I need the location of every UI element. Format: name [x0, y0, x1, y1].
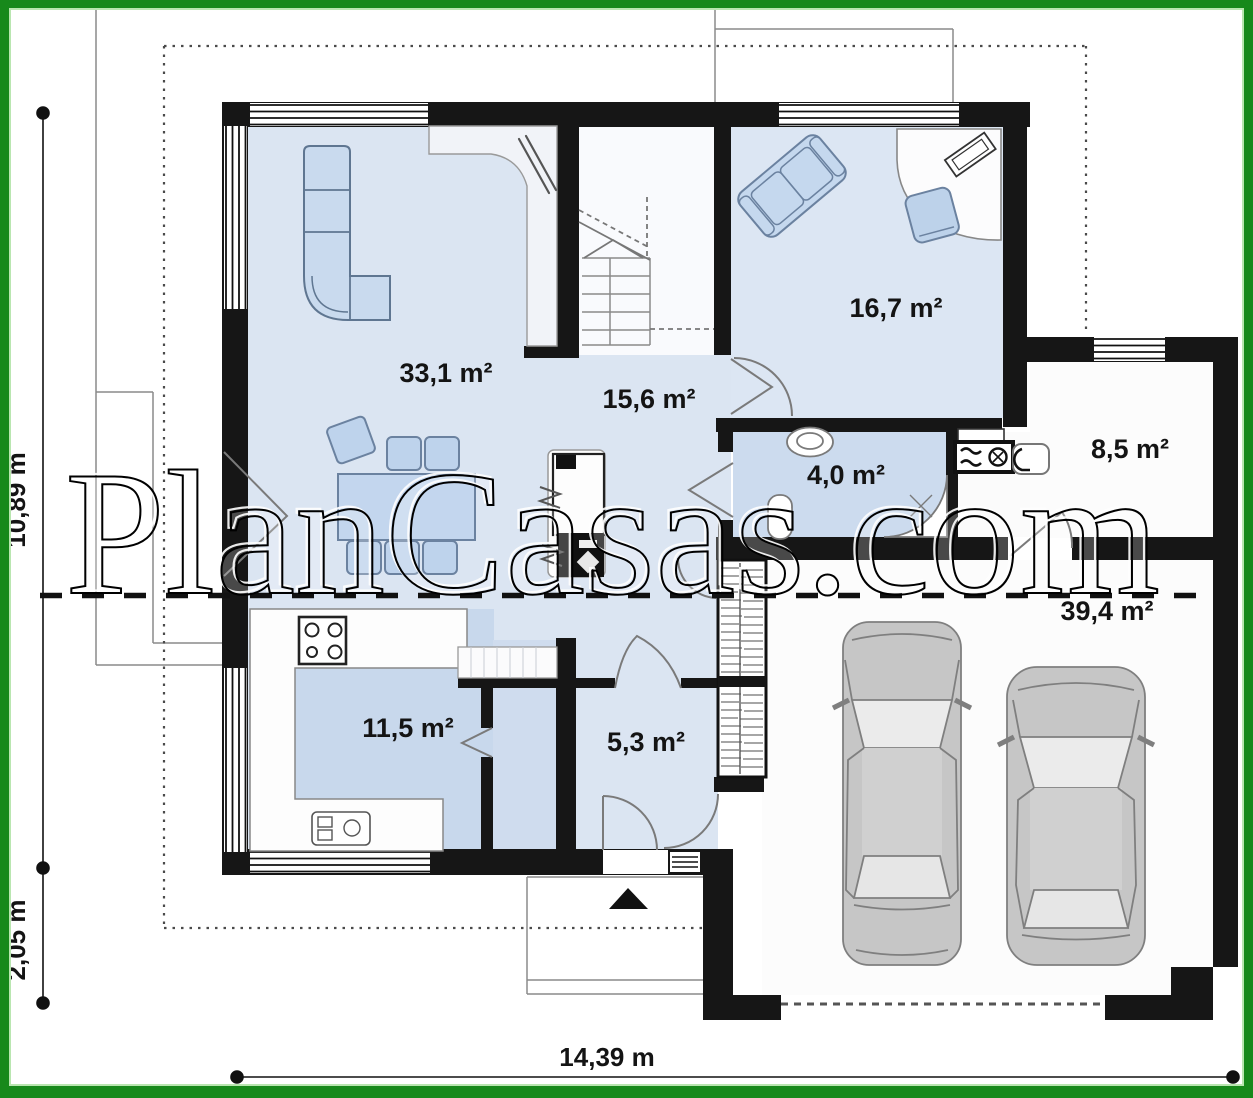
svg-text:14,39 m: 14,39 m — [559, 1042, 654, 1072]
svg-text:16,7 m²: 16,7 m² — [849, 293, 942, 323]
svg-text:15,6 m²: 15,6 m² — [602, 384, 695, 414]
svg-text:PlanCasas.com: PlanCasas.com — [65, 434, 1160, 632]
svg-text:11,5 m²: 11,5 m² — [362, 713, 454, 743]
svg-text:33,1 m²: 33,1 m² — [399, 358, 492, 388]
svg-text:5,3 m²: 5,3 m² — [607, 727, 685, 757]
